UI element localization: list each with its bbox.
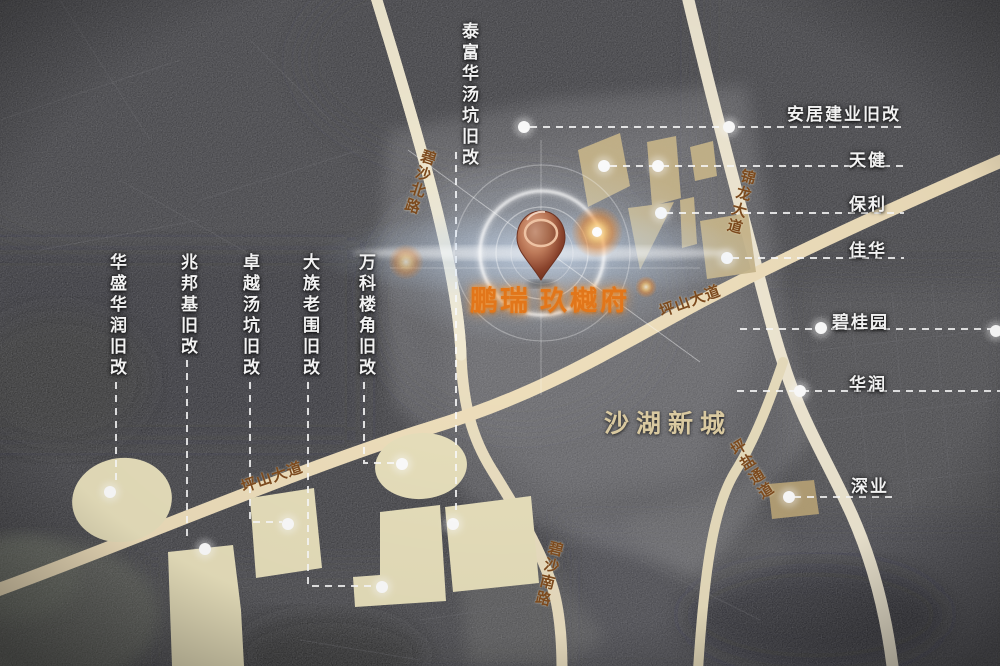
redev-label-left-3: 卓越汤坑旧改: [241, 253, 258, 379]
landmark-label-tianjian: 天健: [849, 146, 887, 171]
redev-label-top: 泰富华汤坑旧改: [460, 22, 477, 169]
landmark-label-shenye: 深业: [851, 472, 889, 497]
landmark-label-baoli: 保利: [849, 190, 887, 215]
redev-label-left-2: 兆邦基旧改: [179, 253, 196, 358]
satellite-location-map: 泰富华汤坑旧改 华盛华润旧改 兆邦基旧改 卓越汤坑旧改 大族老围旧改 万科楼角旧…: [0, 0, 1000, 666]
project-name: 玖樾府: [540, 286, 630, 316]
redev-label-left-1: 华盛华润旧改: [108, 253, 125, 379]
landmark-label-huarun: 华润: [849, 370, 887, 395]
landmark-label-jiahua: 佳华: [849, 236, 887, 261]
area-label-shahu-new-town: 沙湖新城: [604, 404, 732, 440]
project-brand: 鹏瑞: [470, 285, 530, 316]
redev-label-left-5: 万科楼角旧改: [357, 253, 374, 379]
landmark-label-anju: 安居建业旧改: [787, 100, 901, 125]
redev-label-left-4: 大族老围旧改: [301, 253, 318, 379]
project-title: 鹏瑞玖樾府: [438, 279, 662, 319]
landmark-label-biguiyuan: 碧桂园: [832, 308, 889, 333]
